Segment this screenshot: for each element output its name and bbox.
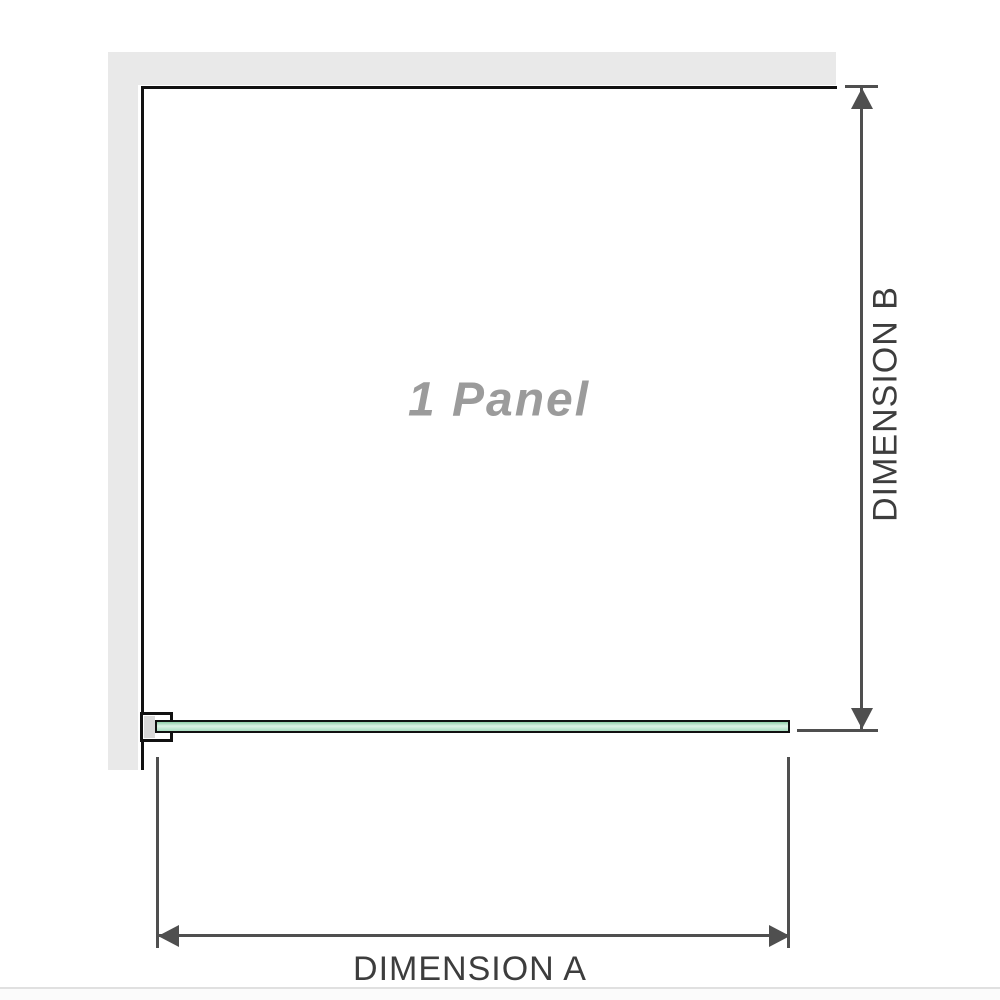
arrow-right-icon <box>769 925 790 947</box>
arrow-up-icon <box>851 88 873 109</box>
bracket-gasket <box>144 716 155 738</box>
dimension-a-label: DIMENSION A <box>353 950 587 989</box>
dimension-a-right-extension <box>787 757 790 948</box>
dimension-a-line <box>158 934 790 937</box>
image-bottom-margin <box>0 989 1000 1000</box>
wall-top <box>108 52 836 85</box>
dimension-b-line <box>860 88 863 729</box>
dimension-b-bottom-tick <box>797 729 878 732</box>
arrow-down-icon <box>851 708 873 729</box>
wall-inner-edge-left <box>141 86 144 770</box>
panel-dimension-diagram: 1 Panel DIMENSION B DIMENSION A <box>0 0 1000 1000</box>
wall-left <box>108 52 138 770</box>
wall-inner-edge-top <box>141 86 837 89</box>
dimension-b-label: DIMENSION B <box>867 286 906 522</box>
arrow-left-icon <box>158 925 179 947</box>
glass-panel <box>155 720 790 733</box>
dimension-a-left-extension <box>156 757 159 948</box>
panel-count-label: 1 Panel <box>408 373 590 428</box>
